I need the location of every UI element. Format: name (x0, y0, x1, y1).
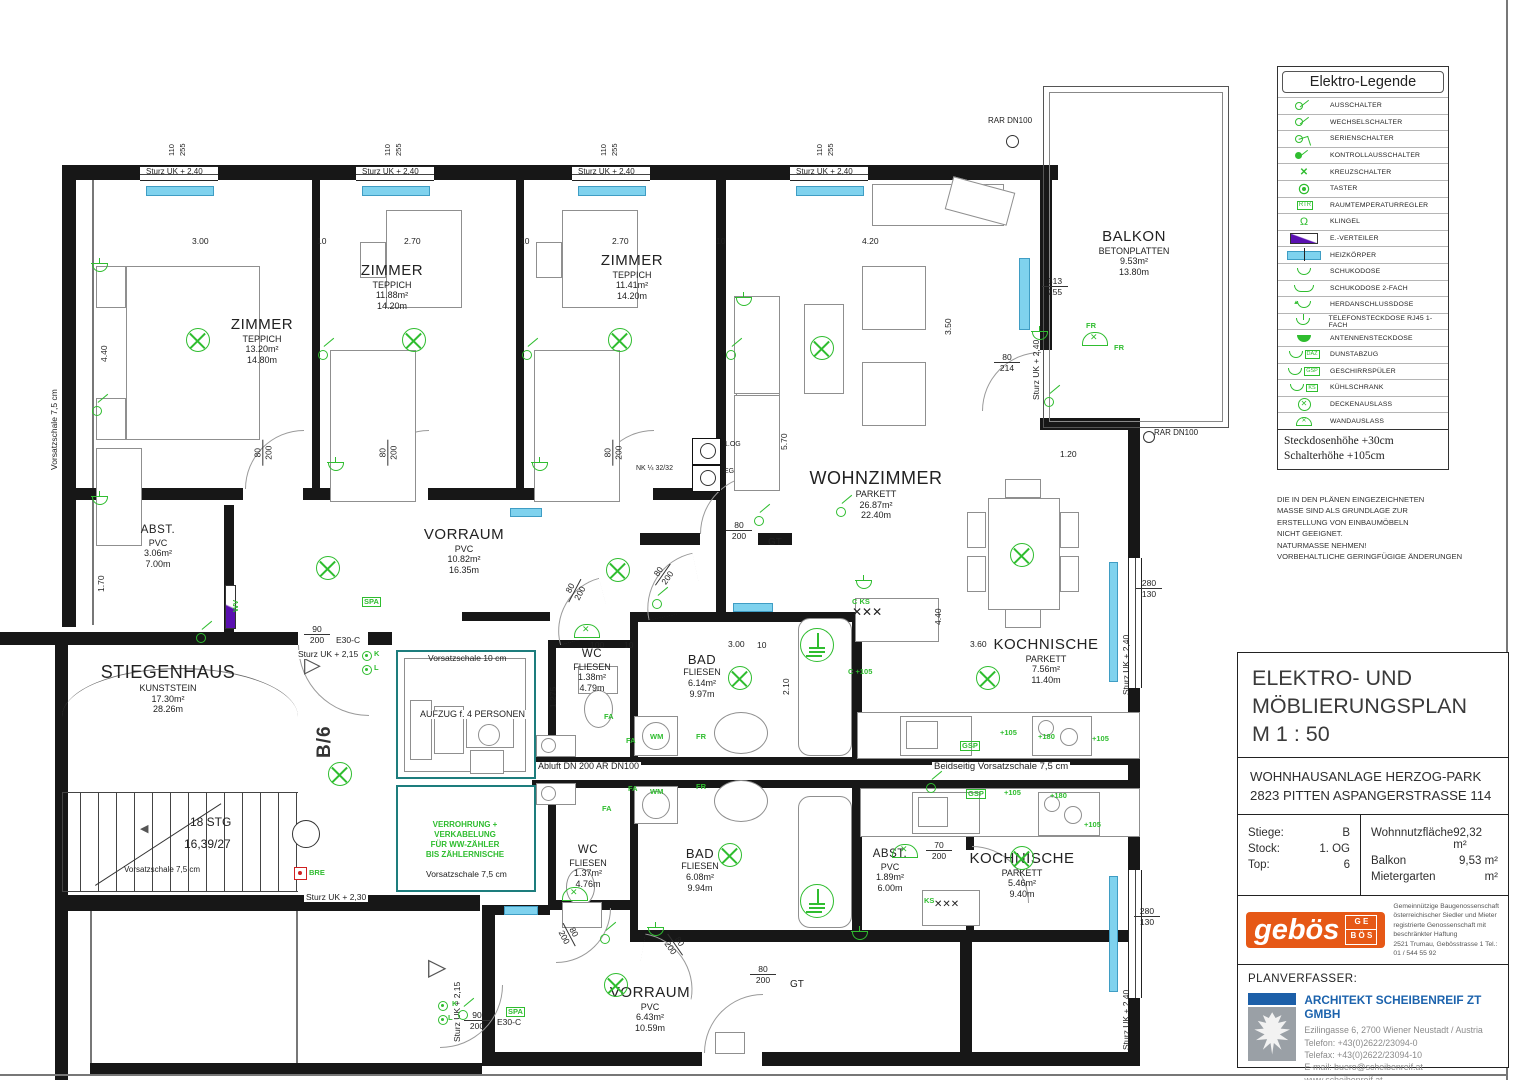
electro-label: SPA (362, 597, 381, 607)
stiege-value: B (1342, 827, 1350, 839)
top-value: 6 (1344, 859, 1350, 871)
architect-logo-bar (1248, 993, 1296, 1005)
furniture-bed (534, 350, 620, 502)
wall (548, 788, 556, 908)
room-name: ZIMMER (231, 316, 293, 334)
electro-label: FA (628, 785, 638, 793)
wechselschalter-icon (1278, 115, 1330, 131)
gebos-grid-icon (1345, 915, 1377, 945)
switch-icon (92, 406, 102, 416)
radiator (1019, 258, 1030, 330)
plan-text: Sturz UK + 2,40 (1032, 340, 1041, 400)
ausschalter-icon (1278, 98, 1330, 114)
plan-text: 255 (179, 143, 187, 156)
furniture-bed (330, 350, 416, 502)
shaft-cell-circle (541, 738, 556, 753)
room-perimeter: 4.79m (573, 683, 611, 694)
taster-icon (1278, 181, 1330, 197)
plan-text: RAR DN100 (988, 117, 1032, 125)
legend-label: SERIENSCHALTER (1330, 135, 1394, 142)
wall (482, 1052, 702, 1066)
room-label-zimmer3: ZIMMERTEPPICH11.41m²14.20m (601, 252, 663, 302)
window (1128, 870, 1142, 998)
door-arc (637, 553, 705, 621)
wall (462, 612, 550, 621)
plan-text: Vorsatzschale 7,5 cm (124, 866, 200, 874)
plan-text: 18 STG (190, 816, 231, 828)
electro-label: +180 (1050, 792, 1067, 800)
legend-item: WANDAUSLASS (1278, 412, 1448, 429)
room-perimeter: 16.35m (424, 565, 504, 576)
legend-item: KLINGEL (1278, 213, 1448, 230)
furniture-chair (1060, 512, 1079, 548)
electro-label: WM (650, 733, 663, 741)
furniture-nightstand (96, 398, 126, 440)
room-area: 3.06m² (141, 548, 175, 559)
plan-text: Sturz UK + 2,40 (362, 168, 419, 176)
room-floor: KUNSTSTEIN (101, 683, 236, 694)
room-perimeter: 9.40m (969, 889, 1074, 900)
room-name: ZIMMER (601, 252, 663, 270)
switch-icon (458, 1010, 468, 1020)
room-perimeter: 14.20m (601, 291, 663, 302)
architect-logo (1248, 993, 1296, 1080)
wall (1128, 418, 1140, 560)
plan-text: Sturz UK + 2,15 (296, 650, 360, 659)
plan-text: 110 (168, 144, 176, 156)
architect-web: www.scheibenreif.at (1304, 1074, 1498, 1080)
room-perimeter: 9.94m (681, 883, 719, 894)
legend-item: HEIZKÖRPER (1278, 246, 1448, 263)
plan-text: E30-C (336, 636, 360, 645)
room-area: 26.87m² (810, 500, 943, 511)
kreuzschalter-icon (1278, 164, 1330, 180)
top-label: Top: (1248, 859, 1270, 871)
kitchen-sink-basin (906, 721, 938, 749)
electro-label: +105 (1084, 821, 1101, 829)
deckenauslass-icon (316, 556, 340, 580)
plan-text: Beidseitig Vorsatzschale 7,5 cm (932, 762, 1070, 772)
stock-label: Stock: (1248, 843, 1280, 855)
room-label-stiegenhaus: STIEGENHAUSKUNSTSTEIN17.30m²28.26m (101, 662, 236, 715)
room-name: STIEGENHAUS (101, 662, 236, 683)
deckenauslass-icon (810, 336, 834, 360)
plan-disclaimer: DIE IN DEN PLÄNEN EINGEZEICHNETEN MASSE … (1277, 494, 1472, 562)
legend-item: AUSSCHALTER (1278, 97, 1448, 114)
legend-label: ANTENNENSTECKDOSE (1330, 335, 1413, 342)
deckenauslass-icon (718, 843, 742, 867)
lamp-point-icon (362, 651, 372, 661)
everteiler-icon (1278, 231, 1330, 247)
dimension: 80200 (252, 440, 273, 466)
dimension: 280130 (1134, 906, 1160, 927)
room-label-zimmer1: ZIMMERTEPPICH13.20m²14.80m (231, 316, 293, 366)
floor-plan-sheet: ◀ ▷ ▷ B/6 VERROHRUNG + VERKABELUNG FÜR W… (0, 0, 1527, 1080)
deckenauslass-icon (186, 328, 210, 352)
radiator (362, 186, 430, 196)
balkon-value: 9,53 m² (1459, 855, 1498, 867)
room-area: 6.43m² (610, 1012, 690, 1023)
room-floor: FLIESEN (573, 662, 611, 673)
legend-item: HERDANSCHLUSSDOSE (1278, 296, 1448, 313)
plan-text: 10 (757, 641, 766, 650)
stock-value: 1. OG (1319, 843, 1350, 855)
furniture-chair (1060, 556, 1079, 592)
lamp-point-icon (438, 1015, 448, 1025)
room-label-vorraum1: VORRAUMPVC10.82m²16.35m (424, 526, 504, 576)
legend-label: E.-VERTEILER (1330, 235, 1379, 242)
washbasin (714, 780, 768, 822)
room-floor: PVC (873, 862, 907, 873)
room-label-wc1: WCFLIESEN1.38m²4.79m (573, 648, 611, 693)
kitchen-sink-basin (918, 797, 948, 827)
plan-text: 5.70 (780, 433, 789, 450)
room-area: 6.14m² (683, 678, 721, 689)
room-label-abst1: ABST.PVC3.06m²7.00m (141, 524, 175, 569)
deckenauslass-icon (1010, 543, 1034, 567)
room-area: 9.53m² (1099, 256, 1170, 267)
potentialausgleich-icon (800, 628, 834, 662)
plan-text: GT (790, 980, 804, 990)
legend-item: GSPGESCHIRRSPÜLER (1278, 363, 1448, 380)
dimension: 80214 (994, 352, 1020, 373)
plan-text: RAR DN100 (1154, 429, 1198, 437)
wand-icon (1278, 413, 1330, 429)
wall (62, 488, 243, 500)
legend-item: TASTER (1278, 180, 1448, 197)
room-name: BAD (681, 846, 719, 861)
electro-label: K (452, 1000, 457, 1008)
room-area: 7.56m² (993, 664, 1098, 675)
meter-dial (700, 470, 716, 486)
switch-icon (836, 507, 846, 517)
legend-label: WANDAUSLASS (1330, 418, 1384, 425)
legend-label: AUSSCHALTER (1330, 102, 1382, 109)
plan-text: Sturz UK + 2,40 (1122, 635, 1131, 695)
plan-text: Sturz UK + 2,40 (578, 168, 635, 176)
room-perimeter: 7.00m (141, 559, 175, 570)
herd-icon (1278, 297, 1330, 313)
heizkoerper-icon (1278, 247, 1330, 263)
room-perimeter: 22.40m (810, 510, 943, 521)
architect-email: E-mail: buero@scheibenreif.at (1304, 1061, 1498, 1073)
room-area: 1.37m² (569, 868, 607, 879)
washbasin (714, 712, 768, 754)
room-floor: TEPPICH (231, 334, 293, 345)
radiator (1109, 876, 1118, 992)
room-name: WC (573, 648, 611, 662)
plan-title: ELEKTRO- UND MÖBLIERUNGSPLAN M 1 : 50 (1238, 653, 1508, 758)
plan-text: GT (768, 538, 782, 548)
radiator (504, 906, 538, 915)
legend-label: RAUMTEMPERATURREGLER (1330, 202, 1428, 209)
plan-text: AUFZUG f. 4 PERSONEN (418, 710, 527, 719)
dimension: 313255 (1042, 276, 1068, 297)
gebos-text: Gemeinnützige Baugenossenschaft österrei… (1393, 902, 1500, 958)
legend-item: RTRRAUMTEMPERATURREGLER (1278, 197, 1448, 214)
lamp-point-icon (438, 1001, 448, 1011)
furniture-chair (967, 512, 986, 548)
room-floor: PVC (141, 538, 175, 549)
room-perimeter: 11.40m (993, 675, 1098, 686)
plan-text: 3.00 (192, 237, 209, 246)
hob-burner (1064, 806, 1082, 824)
room-area: 1.89m² (873, 872, 907, 883)
plan-text: Sturz UK + 2,40 (1122, 990, 1131, 1050)
switch-icon (726, 350, 736, 360)
plan-text: 110 (384, 144, 392, 156)
radiator (578, 186, 646, 196)
plan-text: 4.40 (934, 608, 943, 625)
legend-label: KÜHLSCHRANK (1330, 384, 1384, 391)
plan-text: 110 (816, 144, 824, 156)
socket-icon (856, 581, 872, 589)
stair-arrow-icon: ◀ (140, 824, 148, 835)
plan-text: E30-C (497, 1018, 521, 1027)
planverfasser-label: PLANVERFASSER: (1248, 973, 1498, 985)
electro-label: KS (924, 897, 934, 905)
room-perimeter: 6.00m (873, 883, 907, 894)
electro-label: FA (626, 737, 636, 745)
electro-label: +105 (1004, 789, 1021, 797)
title-block: ELEKTRO- UND MÖBLIERUNGSPLAN M 1 : 50 WO… (1237, 652, 1509, 1068)
plan-text: 3.60 (970, 640, 987, 649)
wall (532, 780, 1140, 788)
plan-text: 2.70 (404, 237, 421, 246)
legend-item: TELEFONSTECKDOSE RJ45 1-FACH (1278, 313, 1448, 330)
deckenauslass-icon (728, 666, 752, 690)
electro-legend: Elektro-Legende AUSSCHALTERWECHSELSCHALT… (1277, 66, 1449, 470)
electro-label: FR (696, 733, 706, 741)
plan-text: Sturz UK + 2,30 (304, 893, 368, 902)
gebos-name: gebös (1254, 916, 1339, 945)
gsp-icon: GSP (1278, 364, 1330, 380)
wall (312, 180, 320, 488)
room-floor: PARKETT (810, 489, 943, 500)
plan-text: 2.10 (782, 678, 791, 695)
wall-line (92, 180, 94, 625)
bre-marker-icon (294, 867, 307, 880)
room-floor: PVC (610, 1002, 690, 1013)
dimension: 80200 (602, 440, 623, 466)
electro-label: L (374, 664, 379, 672)
architect-eagle-icon (1248, 1007, 1296, 1061)
legend-item: SCHUKODOSE 2-FACH (1278, 280, 1448, 297)
room-perimeter: 10.59m (610, 1023, 690, 1034)
room-floor: PVC (424, 544, 504, 555)
wall-line (90, 911, 92, 1063)
plan-info-table: Stiege:B Stock:1. OG Top:6 Wohnnutzfläch… (1238, 815, 1508, 896)
hob-burner (1060, 728, 1078, 746)
plan-text: 2.70 (612, 237, 629, 246)
plan-text: 1.70 (97, 575, 106, 592)
room-name: BAD (683, 652, 721, 667)
room-perimeter: 14.80m (231, 355, 293, 366)
electro-label: +105 (1000, 729, 1017, 737)
legend-item: KREUZSCHALTER (1278, 163, 1448, 180)
switch-icon (754, 516, 764, 526)
room-name: WC (569, 844, 607, 858)
dimension: 280130 (1136, 578, 1162, 599)
room-name: WOHNZIMMER (810, 468, 943, 489)
deckenauslass-icon (606, 558, 630, 582)
planverfasser-block: PLANVERFASSER: ARCHITEKT SCHEIBENREIF ZT… (1238, 965, 1508, 1080)
electro-label: +180 (1038, 733, 1055, 741)
room-floor: BETONPLATTEN (1099, 246, 1170, 257)
wall (62, 165, 76, 627)
legend-label: HERDANSCHLUSSDOSE (1330, 301, 1413, 308)
plan-text: Vorsatzschale 7,5 cm (426, 870, 507, 879)
architect-name: ARCHITEKT SCHEIBENREIF ZT GMBH (1304, 993, 1498, 1021)
plan-text: 255 (827, 143, 835, 156)
electro-label: GSP (966, 789, 986, 799)
dimension: 70200 (926, 840, 952, 861)
legend-title: Elektro-Legende (1282, 71, 1444, 93)
wall (368, 632, 392, 645)
decke-icon (1278, 397, 1330, 413)
legend-label: DUNSTABZUG (1330, 351, 1378, 358)
legend-label: GESCHIRRSPÜLER (1330, 368, 1396, 375)
wohnnutzflaeche-label: Wohnnutzfläche (1371, 827, 1453, 851)
room-name: VORRAUM (424, 526, 504, 544)
room-label-balkon: BALKONBETONPLATTEN9.53m²13.80m (1099, 228, 1170, 278)
telefon-icon (1278, 314, 1329, 330)
plan-text: 10 (317, 237, 326, 246)
dimension: 80200 (377, 440, 398, 466)
gebos-logo: gebös (1246, 912, 1385, 948)
switch-icon (522, 350, 532, 360)
room-floor: TEPPICH (601, 270, 663, 281)
toilet-bowl (584, 690, 613, 728)
room-name: BALKON (1099, 228, 1170, 246)
legend-item: DAZDUNSTABZUG (1278, 346, 1448, 363)
plan-text: ✕✕✕ (852, 606, 882, 618)
legend-label: SCHUKODOSE 2-FACH (1330, 285, 1408, 292)
room-area: 13.20m² (231, 344, 293, 355)
wall (55, 911, 68, 1080)
dimension: 80200 (750, 964, 776, 985)
electro-label: FR (696, 783, 706, 791)
plan-text: Vorsatzschale 7,5 cm (50, 389, 59, 470)
switch-icon (196, 633, 206, 643)
legend-notes: Steckdosenhöhe +30cm Schalterhöhe +105cm (1278, 429, 1448, 469)
potentialausgleich-icon (800, 884, 834, 918)
plan-text: 10 (520, 237, 529, 246)
room-area: 1.38m² (573, 672, 611, 683)
electro-label: FA (602, 805, 612, 813)
electro-label: FA (604, 713, 614, 721)
lamp-point-icon (362, 665, 372, 675)
wall (55, 895, 480, 911)
switch-icon (600, 934, 610, 944)
room-label-kochnische1: KOCHNISCHEPARKETT7.56m²11.40m (993, 636, 1098, 686)
plan-text: 255 (395, 143, 403, 156)
gebos-block: gebös Gemeinnützige Baugenossenschaft ös… (1238, 896, 1508, 965)
mietergarten-label: Mietergarten (1371, 871, 1436, 883)
legend-label: KREUZSCHALTER (1330, 169, 1391, 176)
room-name: ABST. (141, 524, 175, 538)
electro-label: BRE (309, 869, 325, 877)
schuko2-icon (1278, 281, 1330, 297)
plan-text: Sturz UK + 2,40 (146, 168, 203, 176)
furniture-sofa (734, 296, 780, 394)
plan-text: Vorsatzschale 10 cm (428, 654, 506, 663)
electro-label: WV (232, 600, 240, 612)
room-name: ZIMMER (361, 262, 423, 280)
plan-text: 4.40 (100, 345, 109, 362)
plan-text: 110 (600, 144, 608, 156)
room-floor: FLIESEN (681, 861, 719, 872)
legend-label: TELEFONSTECKDOSE RJ45 1-FACH (1329, 315, 1448, 329)
electro-label: K (374, 650, 379, 658)
radiator (146, 186, 214, 196)
electro-label: FR (1086, 322, 1096, 330)
section-marker-icon: ▷ (428, 956, 446, 980)
plan-text: NK ¼ 32/32 (636, 465, 673, 472)
furniture-chair (536, 242, 562, 278)
elevator-machinery (478, 724, 500, 746)
room-floor: FLIESEN (569, 858, 607, 869)
radiator (1109, 562, 1118, 682)
electro-label: FR (1114, 344, 1124, 352)
wall (640, 533, 700, 545)
furniture-armchair (862, 362, 926, 426)
plan-text: 3.50 (944, 318, 953, 335)
room-label-bad1: BADFLIESEN6.14m²9.97m (683, 652, 721, 699)
room-area: 11.41m² (601, 280, 663, 291)
deckenauslass-icon (328, 762, 352, 786)
room-label-bad2: BADFLIESEN6.08m²9.94m (681, 846, 719, 893)
shaft-cell-circle (541, 786, 556, 801)
furniture-chair (967, 556, 986, 592)
room-label-wc2: WCFLIESEN1.37m²4.76m (569, 844, 607, 889)
legend-item: KSKÜHLSCHRANK (1278, 379, 1448, 396)
legend-label: KONTROLLAUSSCHALTER (1330, 152, 1420, 159)
plan-text: EG (724, 468, 734, 475)
stair-circle (292, 820, 320, 848)
dimension: 80200 (726, 520, 752, 541)
deckenauslass-icon (976, 666, 1000, 690)
room-area: 17.30m² (101, 694, 236, 705)
room-label-zimmer2: ZIMMERTEPPICH11.88m²14.20m (361, 262, 423, 312)
ks-icon: KS (1278, 380, 1330, 396)
legend-label: SCHUKODOSE (1330, 268, 1380, 275)
deckenauslass-icon (402, 328, 426, 352)
balkon-label: Balkon (1371, 855, 1406, 867)
legend-label: TASTER (1330, 185, 1358, 192)
niche (715, 1032, 745, 1054)
plan-text: 3.00 (728, 640, 745, 649)
room-area: 5.46m² (969, 878, 1074, 889)
room-floor: TEPPICH (361, 280, 423, 291)
apartment-marker: B/6 (314, 725, 336, 758)
plan-text: 4.20 (862, 237, 879, 246)
plan-text: 1.20 (1060, 450, 1077, 459)
deckenauslass-icon (1010, 846, 1034, 870)
mietergarten-value: m² (1485, 871, 1498, 883)
elevator-machinery (470, 750, 504, 774)
wohnnutzflaeche-value: 92,32 m² (1453, 827, 1498, 851)
radiator (733, 603, 773, 612)
plan-text: 1.OG (724, 441, 741, 448)
verrohrung-note: VERROHRUNG + VERKABELUNG FÜR WW-ZÄHLER B… (400, 820, 530, 860)
wall (762, 1052, 1140, 1066)
drain-circle (1006, 135, 1019, 148)
legend-label: DECKENAUSLASS (1330, 401, 1392, 408)
legend-item: SERIENSCHALTER (1278, 130, 1448, 147)
architect-phone: Telefon: +43(0)2622/23094-0 (1304, 1037, 1498, 1049)
legend-item: KONTROLLAUSSCHALTER (1278, 147, 1448, 164)
